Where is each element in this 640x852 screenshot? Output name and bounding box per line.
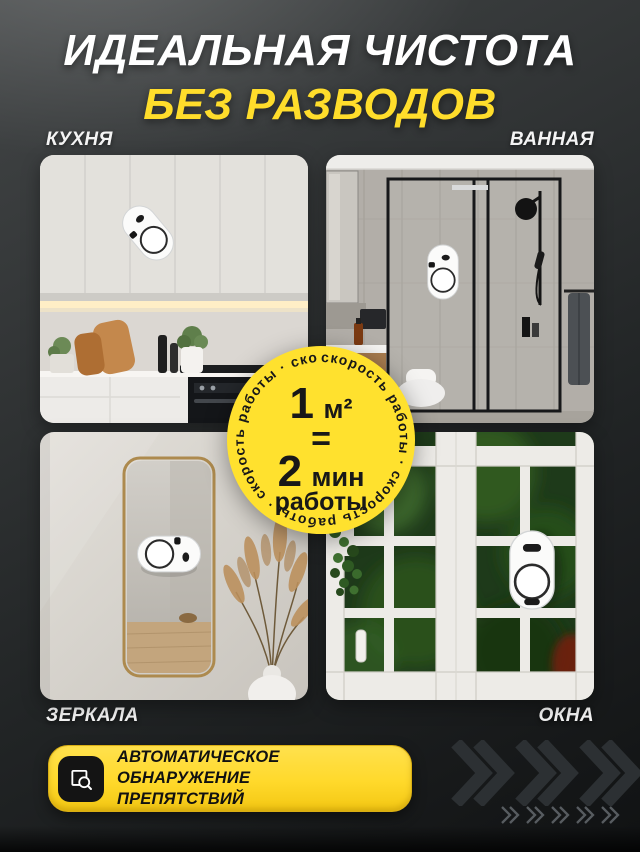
badge-caption-text: работы [275,488,368,516]
window-cleaning-robot [428,245,459,299]
badge-equals-text: = [311,420,331,458]
speed-badge: скорость работы · скорость работы · скор… [227,346,415,534]
window-cleaning-robot [138,536,201,572]
promo-page: ИДЕАЛЬНАЯ ЧИСТОТА БЕЗ РАЗВОДОВ КУХНЯ ВАН… [0,0,640,852]
banner-icon-box [58,756,104,802]
bathroom-label: ВАННАЯ [510,129,594,151]
window-cleaning-robot [510,531,554,609]
mirrors-label: ЗЕРКАЛА [46,705,139,727]
page-subtitle: БЕЗ РАЗВОДОВ [0,81,640,129]
feature-banner: АВТОМАТИЧЕСКОЕ ОБНАРУЖЕНИЕ ПРЕПЯТСТВИЙ [48,745,412,812]
banner-line2: ПРЕПЯТСТВИЙ [117,789,411,810]
obstacle-detection-scan-icon [68,766,94,792]
chevron-right-icons-large [448,740,640,806]
chevron-right-icons-small [500,806,622,824]
kitchen-label: КУХНЯ [46,129,113,151]
banner-line1: АВТОМАТИЧЕСКОЕ ОБНАРУЖЕНИЕ [117,747,411,789]
banner-text: АВТОМАТИЧЕСКОЕ ОБНАРУЖЕНИЕ ПРЕПЯТСТВИЙ [117,747,411,810]
windows-label: ОКНА [538,705,594,727]
page-title: ИДЕАЛЬНАЯ ЧИСТОТА [0,27,640,75]
